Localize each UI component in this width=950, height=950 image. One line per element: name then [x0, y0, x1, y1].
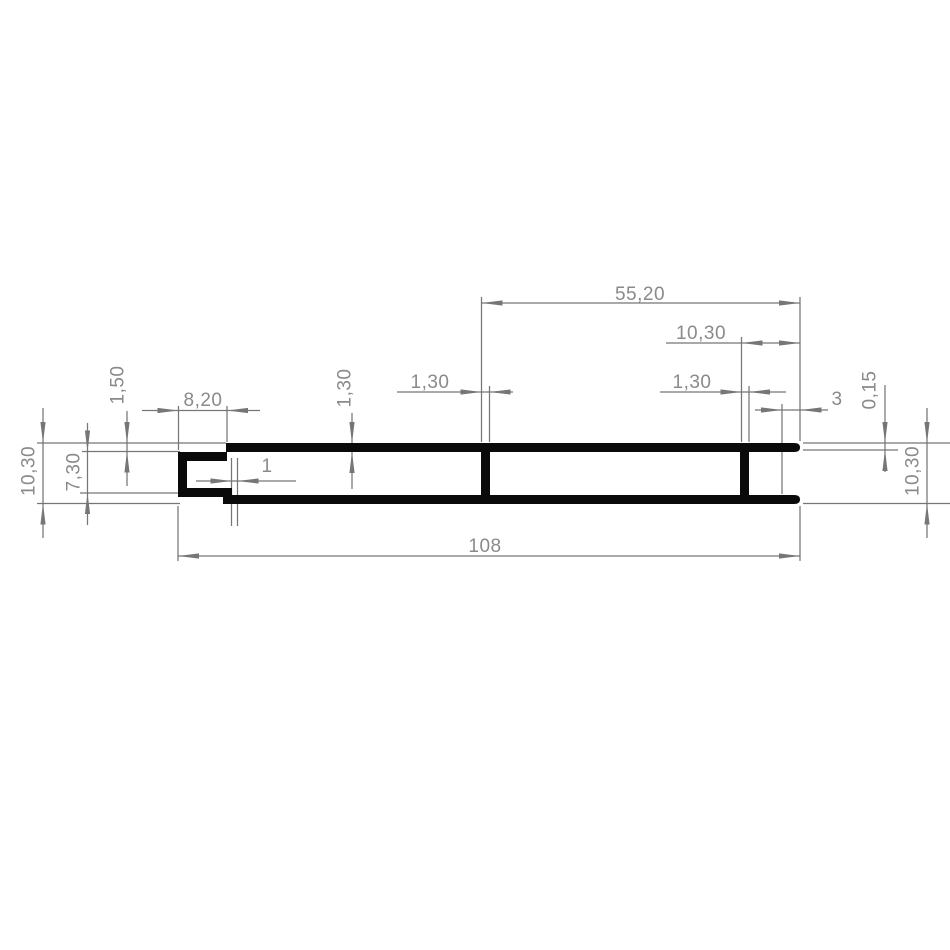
dimension-arrowhead — [779, 553, 800, 558]
dim-total-length: 108 — [468, 536, 501, 557]
dimension-arrowhead — [924, 504, 929, 525]
dimension-arrowhead — [349, 422, 354, 443]
dim-channel-step: 1 — [261, 456, 272, 477]
right-web — [740, 452, 749, 495]
dim-right-span: 55,20 — [615, 284, 665, 305]
dim-height-left: 10,30 — [19, 446, 40, 496]
drawing-canvas: 55,20 10,30 1,30 1,30 3 0,15 10,30 10,30… — [0, 0, 950, 950]
dimension-arrowhead — [779, 340, 800, 345]
dim-end-lip-length: 3 — [831, 389, 842, 410]
dimension-arrowhead — [158, 408, 179, 413]
dimension-arrowhead — [238, 478, 259, 483]
dimension-arrowhead — [490, 389, 511, 394]
dim-right-web-thickness: 1,30 — [673, 372, 712, 393]
dimension-arrowhead — [779, 300, 800, 305]
dimension-lines — [37, 297, 950, 561]
dimension-arrowhead — [801, 407, 822, 412]
dimension-arrowhead — [40, 422, 45, 443]
dimension-arrowhead — [721, 389, 742, 394]
dimension-arrowhead — [461, 389, 482, 394]
dimension-arrowhead — [227, 408, 248, 413]
dimension-arrowhead — [40, 504, 45, 525]
dimension-arrowhead — [742, 340, 763, 345]
dimension-arrowhead — [349, 452, 354, 473]
dim-mid-web-thickness: 1,30 — [411, 372, 450, 393]
dim-height-right: 10,30 — [903, 446, 924, 496]
hook-bottom-arm — [178, 488, 232, 497]
dimension-arrowhead — [124, 452, 129, 473]
dimension-arrowhead — [882, 422, 887, 443]
dimension-arrowhead — [124, 422, 129, 443]
dimension-arrowhead — [211, 478, 232, 483]
dimension-arrowhead — [85, 431, 90, 452]
dim-right-end-to-web: 10,30 — [676, 323, 726, 344]
top-flange — [226, 443, 800, 452]
dimension-arrowhead — [882, 450, 887, 471]
dimension-arrowhead — [178, 553, 199, 558]
dimension-labels: 55,20 10,30 1,30 1,30 3 0,15 10,30 10,30… — [19, 284, 924, 557]
dim-end-lip-offset: 0,15 — [860, 371, 881, 410]
dimension-arrowhead — [924, 422, 929, 443]
dim-channel-depth: 8,20 — [184, 390, 223, 411]
dimension-arrowhead — [482, 300, 503, 305]
middle-web — [481, 452, 490, 495]
profile-technical-drawing: 55,20 10,30 1,30 1,30 3 0,15 10,30 10,30… — [0, 0, 950, 950]
dim-channel-top-offset: 1,50 — [108, 366, 129, 405]
dim-wall-thickness: 1,30 — [335, 369, 356, 408]
dim-channel-inner-height: 7,30 — [64, 453, 85, 492]
dimension-arrowhead — [761, 407, 782, 412]
bottom-flange — [223, 495, 800, 504]
dimension-arrowhead — [749, 389, 770, 394]
